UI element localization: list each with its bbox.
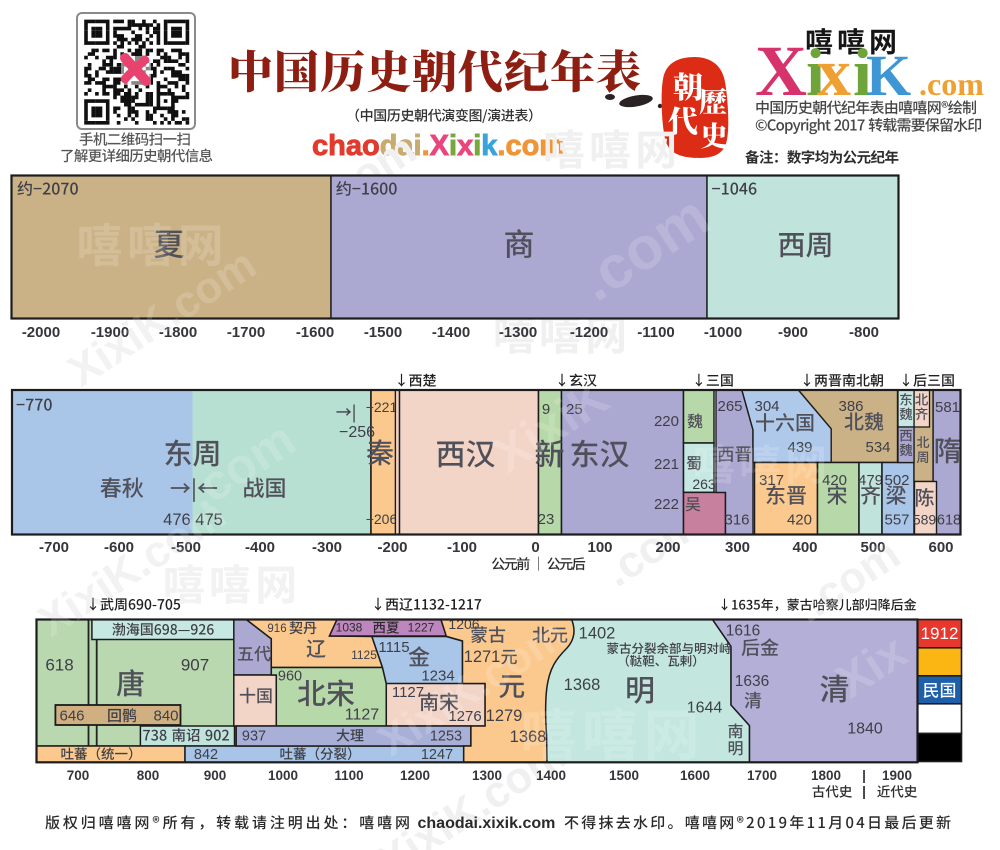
svg-text:-1100: -1100 <box>637 324 675 341</box>
svg-text:1227: 1227 <box>408 621 435 635</box>
svg-text:-1300: -1300 <box>499 324 537 341</box>
svg-text:900: 900 <box>204 768 227 783</box>
svg-text:-900: -900 <box>778 324 808 341</box>
svg-text:−206: −206 <box>366 511 398 527</box>
svg-text:1840: 1840 <box>847 721 883 738</box>
svg-text:1127: 1127 <box>345 707 380 724</box>
svg-text:0: 0 <box>531 539 539 556</box>
svg-text:220: 220 <box>654 413 679 430</box>
svg-text:1279: 1279 <box>486 707 523 725</box>
svg-text:1247: 1247 <box>421 747 453 763</box>
svg-text:1400: 1400 <box>536 768 566 783</box>
svg-text:-1600: -1600 <box>296 324 334 341</box>
svg-text:chaodai.xixik.com: chaodai.xixik.com <box>418 815 556 832</box>
svg-text:200: 200 <box>655 539 680 556</box>
svg-text:304: 304 <box>754 398 779 415</box>
svg-text:937: 937 <box>242 729 266 745</box>
svg-text:316: 316 <box>724 512 749 529</box>
svg-text:1125: 1125 <box>351 648 377 662</box>
svg-text:581: 581 <box>935 399 960 416</box>
svg-text:1100: 1100 <box>334 768 363 783</box>
svg-text:1800: 1800 <box>811 768 841 783</box>
svg-text:-700: -700 <box>39 539 69 556</box>
svg-text:700: 700 <box>67 768 90 783</box>
svg-text:1900: 1900 <box>882 768 912 783</box>
svg-text:1600: 1600 <box>680 768 710 783</box>
svg-text:1700: 1700 <box>747 768 777 783</box>
svg-text:x: x <box>817 34 851 110</box>
svg-text:-300: -300 <box>312 539 342 556</box>
svg-text:-1200: -1200 <box>570 324 608 341</box>
svg-text:1912: 1912 <box>921 624 959 643</box>
svg-text:-100: -100 <box>447 539 477 556</box>
svg-text:.com: .com <box>919 66 984 102</box>
svg-text:1402: 1402 <box>579 625 616 643</box>
svg-text:600: 600 <box>928 539 953 556</box>
svg-text:-1000: -1000 <box>704 324 742 341</box>
svg-text:1115: 1115 <box>378 639 409 656</box>
svg-text:1636: 1636 <box>735 673 769 690</box>
svg-text:420: 420 <box>787 512 812 529</box>
svg-text:1616: 1616 <box>726 623 760 640</box>
svg-text:800: 800 <box>137 768 160 783</box>
svg-text:960: 960 <box>278 669 302 685</box>
svg-text:1368: 1368 <box>564 676 601 694</box>
svg-text:-400: -400 <box>245 539 275 556</box>
svg-text:589: 589 <box>913 512 937 528</box>
svg-text:1000: 1000 <box>268 768 298 783</box>
svg-text:907: 907 <box>181 656 209 675</box>
svg-text:400: 400 <box>792 539 817 556</box>
svg-text:618: 618 <box>937 513 961 529</box>
svg-text:100: 100 <box>587 539 612 556</box>
svg-text:534: 534 <box>865 439 890 456</box>
svg-text:-2000: -2000 <box>22 324 60 341</box>
svg-text:|: | <box>862 768 866 783</box>
svg-text:842: 842 <box>194 747 218 763</box>
svg-text:300: 300 <box>725 539 750 556</box>
svg-text:265: 265 <box>717 398 742 415</box>
svg-text:−221: −221 <box>366 399 398 415</box>
svg-text:1200: 1200 <box>400 768 430 783</box>
svg-text:|: | <box>862 784 866 799</box>
svg-text:646: 646 <box>59 708 84 725</box>
svg-text:−256: −256 <box>339 424 375 441</box>
svg-text:-1500: -1500 <box>364 324 402 341</box>
svg-text:916: 916 <box>267 623 286 635</box>
svg-text:1300: 1300 <box>472 768 502 783</box>
svg-text:618: 618 <box>45 656 73 675</box>
svg-text:K: K <box>866 43 911 108</box>
svg-text:-200: -200 <box>377 539 407 556</box>
svg-text:840: 840 <box>153 708 178 725</box>
svg-text:386: 386 <box>838 398 863 415</box>
svg-text:X: X <box>755 31 807 111</box>
svg-text:-800: -800 <box>849 324 879 341</box>
svg-text:222: 222 <box>654 496 679 513</box>
svg-text:1038: 1038 <box>336 621 363 635</box>
svg-text:420: 420 <box>822 472 847 489</box>
svg-text:-1400: -1400 <box>432 324 470 341</box>
svg-text:221: 221 <box>654 456 679 473</box>
svg-text:1500: 1500 <box>609 768 639 783</box>
svg-text:-1700: -1700 <box>227 324 265 341</box>
svg-text:23: 23 <box>538 511 555 528</box>
